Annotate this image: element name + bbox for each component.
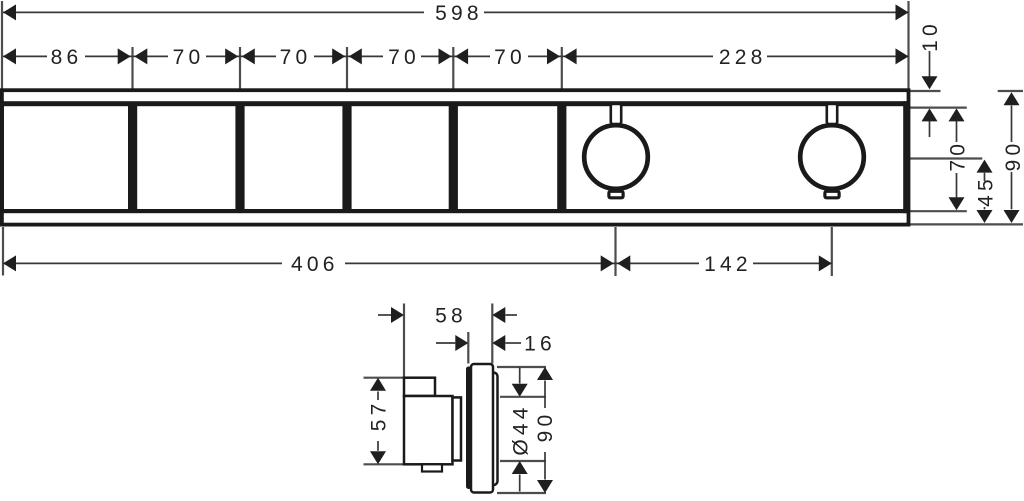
svg-text:70: 70 — [388, 46, 420, 69]
svg-text:70: 70 — [173, 46, 205, 69]
svg-text:45: 45 — [974, 175, 997, 207]
svg-text:70: 70 — [280, 46, 312, 69]
svg-text:70: 70 — [494, 46, 526, 69]
svg-text:70: 70 — [946, 140, 969, 172]
svg-text:Ø44: Ø44 — [509, 403, 532, 455]
svg-text:90: 90 — [1002, 140, 1024, 172]
svg-text:406: 406 — [291, 253, 339, 276]
svg-text:10: 10 — [919, 20, 942, 52]
svg-text:142: 142 — [704, 253, 752, 276]
svg-text:86: 86 — [51, 46, 83, 69]
svg-text:598: 598 — [435, 2, 483, 25]
svg-text:57: 57 — [368, 400, 391, 432]
svg-text:16: 16 — [524, 333, 556, 356]
svg-text:228: 228 — [719, 46, 767, 69]
svg-text:90: 90 — [534, 411, 557, 443]
svg-text:58: 58 — [435, 305, 467, 328]
